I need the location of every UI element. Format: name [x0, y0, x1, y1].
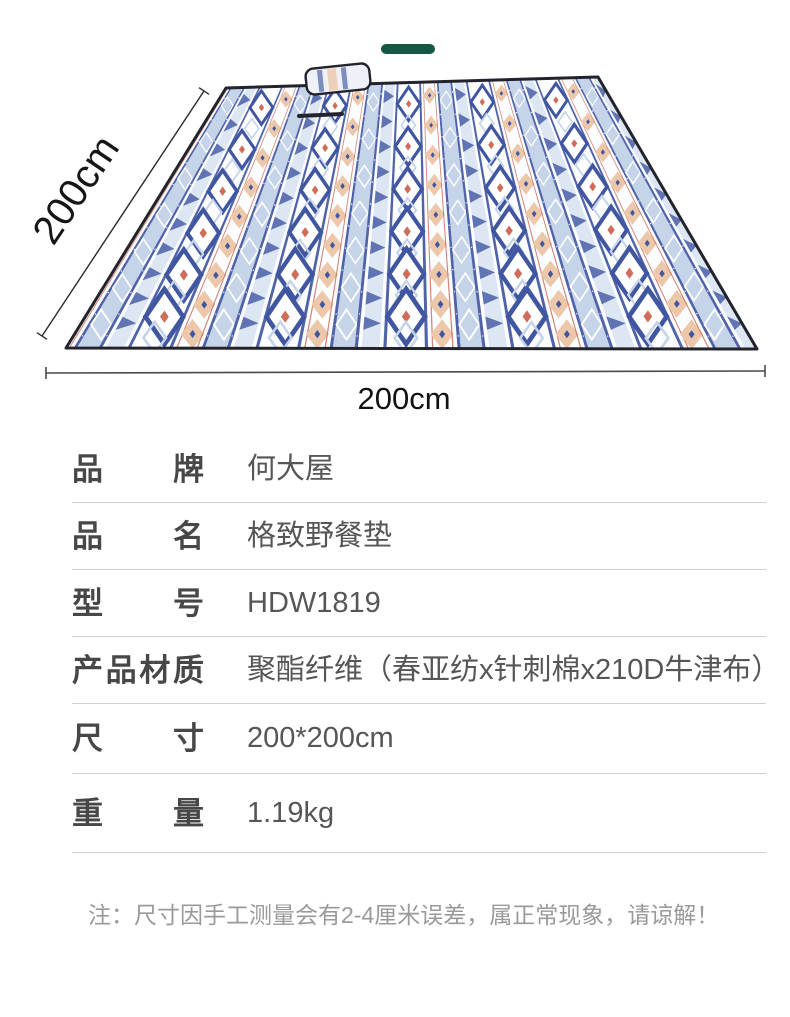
dimension-label-left: 200cm — [24, 128, 128, 252]
dimension-label-bottom: 200cm — [357, 381, 450, 416]
spec-row: 尺寸 200*200cm — [72, 704, 766, 774]
spec-value: HDW1819 — [247, 586, 381, 621]
product-spec-page: 200cm 200cm 品牌 何大屋 品名 格致野餐垫 型号 HDW1819 产… — [0, 0, 790, 1017]
spec-row: 产品材质 聚酯纤维（春亚纺x针刺棉x210D牛津布） — [72, 637, 766, 704]
spec-value: 聚酯纤维（春亚纺x针刺棉x210D牛津布） — [247, 653, 780, 688]
spec-row: 重量 1.19kg — [72, 774, 766, 853]
spec-value: 1.19kg — [247, 796, 334, 831]
spec-row: 品牌 何大屋 — [72, 436, 766, 503]
spec-table: 品牌 何大屋 品名 格致野餐垫 型号 HDW1819 产品材质 聚酯纤维（春亚纺… — [72, 436, 766, 853]
spec-value: 格致野餐垫 — [247, 519, 392, 554]
picnic-mat-illustration — [66, 63, 757, 354]
spec-label: 尺寸 — [72, 723, 204, 754]
spec-label: 型号 — [72, 588, 204, 619]
spec-label: 品名 — [72, 521, 204, 552]
spec-row: 品名 格致野餐垫 — [72, 503, 766, 570]
dimension-line-bottom — [46, 365, 765, 379]
product-illustration: 200cm 200cm — [0, 0, 790, 420]
spec-row: 型号 HDW1819 — [72, 570, 766, 637]
spec-value: 何大屋 — [247, 452, 334, 487]
carry-handle — [299, 114, 342, 116]
measurement-note: 注：尺寸因手工测量会有2-4厘米误差，属正常现象，请谅解！ — [88, 896, 719, 930]
strap-tab — [305, 63, 371, 96]
spec-label: 重量 — [72, 798, 204, 829]
spec-value: 200*200cm — [247, 721, 394, 756]
spec-label: 产品材质 — [72, 655, 204, 686]
spec-label: 品牌 — [72, 454, 204, 485]
